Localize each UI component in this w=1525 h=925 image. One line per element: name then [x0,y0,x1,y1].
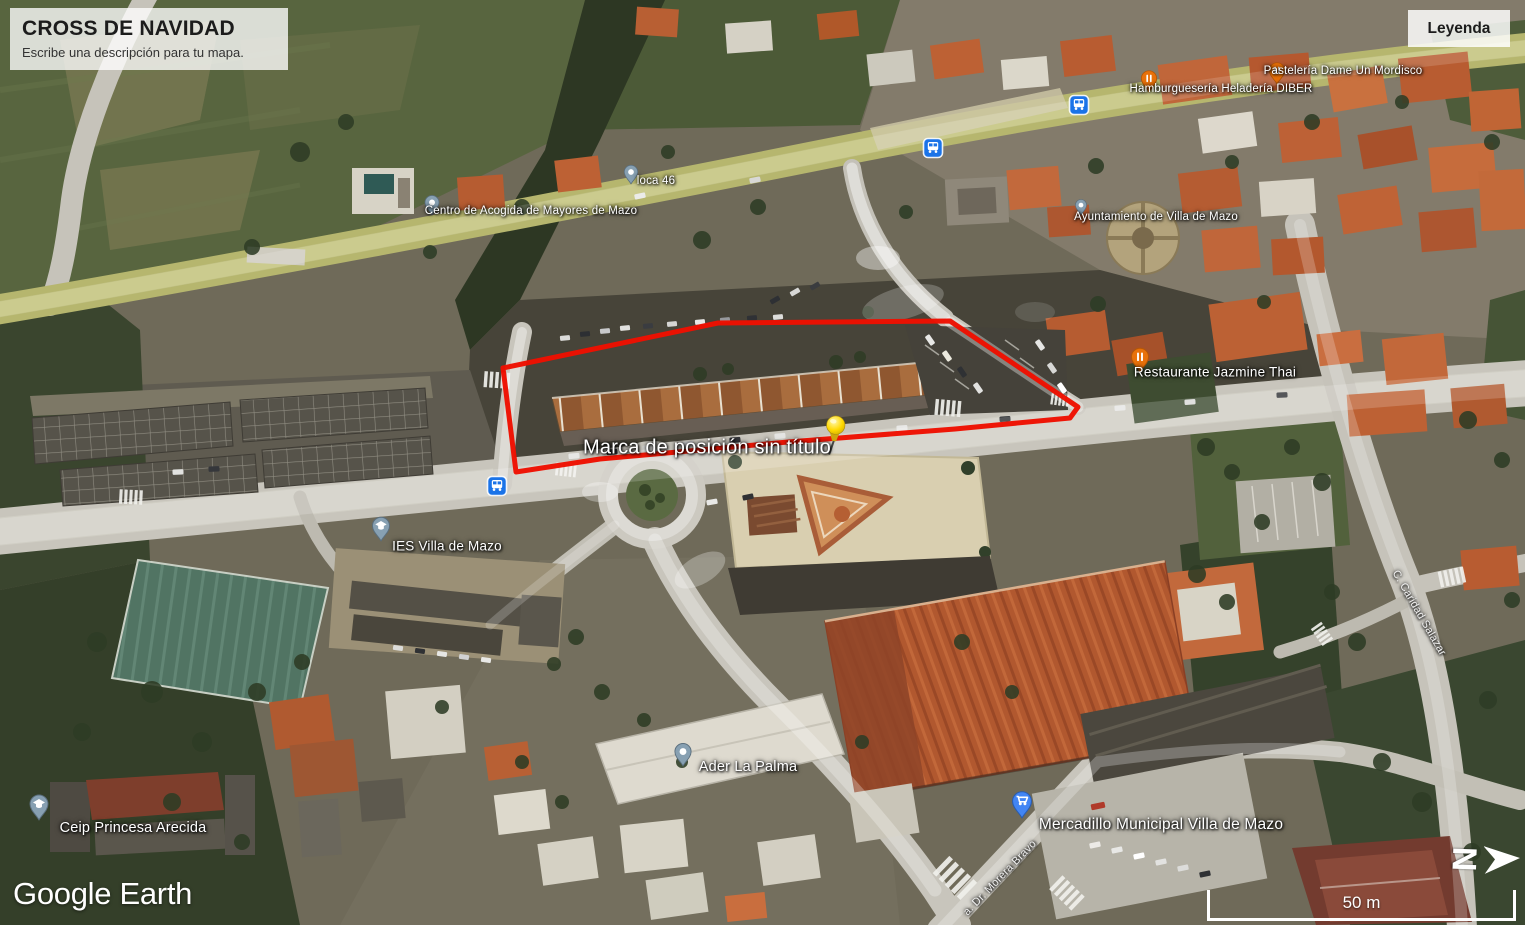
compass-north-letter: N [1442,837,1485,880]
bus-stop-icon[interactable] [1070,96,1089,115]
map-description-placeholder[interactable]: Escribe una descripción para tu mapa. [22,45,274,60]
legend-button[interactable]: Leyenda [1408,10,1510,47]
map-label-pasteleria[interactable]: Pastelería Dame Un Mordisco [1264,65,1423,77]
map-label-ayuntamiento[interactable]: Ayuntamiento de Villa de Mazo [1074,211,1238,223]
placemark-label[interactable]: Marca de posición sin título [583,437,831,460]
scale-bar: 50 m [1207,890,1516,921]
google-earth-logo: Google Earth [13,876,192,912]
map-label-mercadillo[interactable]: Mercadillo Municipal Villa de Mazo [1039,816,1283,834]
map-label-hamburgueseria[interactable]: Hamburguesería Heladería DIBER [1129,83,1312,95]
map-label-ies[interactable]: IES Villa de Mazo [392,539,502,554]
compass-north-arrow-icon [1484,838,1525,880]
map-title-panel[interactable]: CROSS DE NAVIDAD Escribe una descripción… [10,8,288,70]
bus-stop-icon[interactable] [488,477,507,496]
satellite-imagery[interactable] [0,0,1525,925]
map-label-jazmine-thai[interactable]: Restaurante Jazmine Thai [1134,365,1296,380]
bus-stop-icon[interactable] [924,139,943,158]
map-title[interactable]: CROSS DE NAVIDAD [22,17,274,41]
google-earth-viewport[interactable]: loca 46 Centro de Acogida de Mayores de … [0,0,1525,925]
map-label-loca-46[interactable]: loca 46 [637,175,675,187]
scale-bar-distance: 50 m [1210,893,1513,913]
map-label-centro-acogida[interactable]: Centro de Acogida de Mayores de Mazo [425,205,637,217]
map-label-ceip[interactable]: Ceip Princesa Arecida [60,820,207,836]
map-label-ader[interactable]: Ader La Palma [699,759,798,775]
